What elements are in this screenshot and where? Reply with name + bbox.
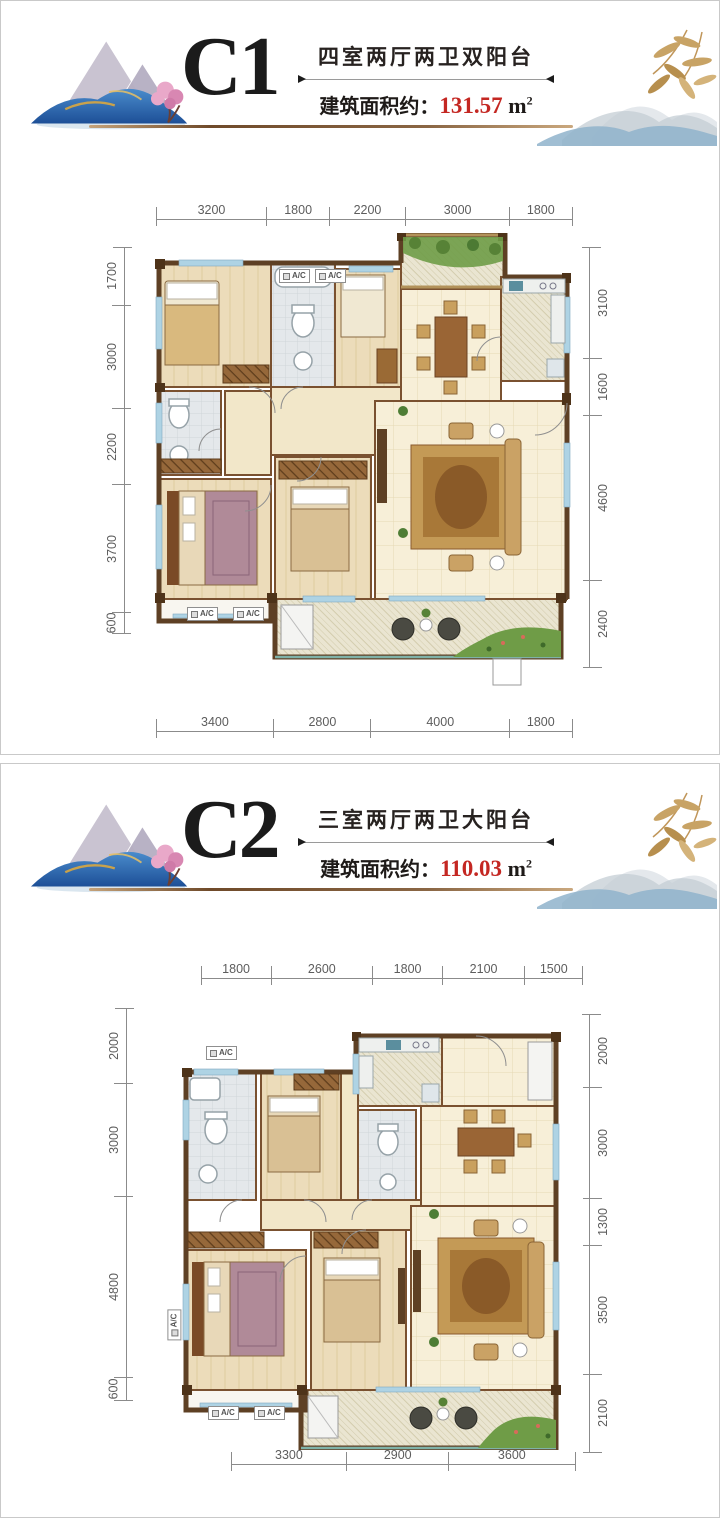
ac-unit-label: A/C	[315, 269, 346, 283]
ac-unit-label: A/C	[233, 607, 264, 621]
header-rule	[89, 125, 573, 128]
dimension-row-top: 18002600180021001500	[201, 952, 583, 978]
area-unit: m2	[508, 93, 532, 118]
ac-unit-label: A/C	[167, 1310, 181, 1341]
dimension-col-left: 200030004800600	[101, 1008, 127, 1400]
divider-arrow-line	[299, 79, 553, 80]
bamboo-mountain-art	[537, 790, 717, 910]
unit-info: 四室两厅两卫双阳台 建筑面积约：131.57 m2	[297, 41, 555, 119]
area-unit: m2	[508, 856, 532, 881]
header-rule	[89, 888, 573, 891]
floorplan-drawing-c2	[176, 1000, 586, 1450]
floorplan-panel-c1: C1 四室两厅两卫双阳台 建筑面积约：131.57 m2 32001800220…	[0, 0, 720, 755]
area-value: 110.03	[440, 856, 502, 881]
bamboo-mountain-art	[537, 27, 717, 147]
dimension-row-bottom: 3400280040001800	[156, 705, 572, 731]
ac-unit-label: A/C	[208, 1406, 239, 1420]
plan-area-c1: 32001800220030001800 3400280040001800 17…	[1, 141, 719, 754]
master-bed	[167, 491, 257, 585]
floorplan-panel-c2: C2 三室两厅两卫大阳台 建筑面积约：110.03 m2 18002600180…	[0, 763, 720, 1518]
unit-descriptor: 三室两厅两卫大阳台	[297, 804, 555, 834]
area-prefix: 建筑面积约：	[319, 96, 439, 118]
ac-unit-label: A/C	[254, 1406, 285, 1420]
ac-unit-label: A/C	[279, 269, 310, 283]
unit-descriptor: 四室两厅两卫双阳台	[297, 41, 555, 71]
plan-area-c2: 18002600180021001500 330029003600 200030…	[1, 904, 719, 1517]
mountain-art	[23, 796, 198, 896]
ac-unit-label: A/C	[206, 1046, 237, 1060]
area-text: 建筑面积约：131.57 m2	[297, 90, 555, 119]
hall-left	[225, 391, 271, 475]
meter-box	[493, 659, 521, 685]
area-text: 建筑面积约：110.03 m2	[297, 853, 555, 882]
unit-name: C1	[181, 25, 278, 109]
floorplan-drawing-c1	[153, 233, 591, 703]
entry-closet	[528, 1042, 552, 1100]
dimension-col-right: 20003000130035002100	[589, 1014, 615, 1452]
hallway	[261, 1200, 421, 1230]
unit-info: 三室两厅两卫大阳台 建筑面积约：110.03 m2	[297, 804, 555, 882]
area-value: 131.57	[439, 93, 502, 118]
wardrobe	[161, 459, 221, 473]
area-prefix: 建筑面积约：	[320, 859, 440, 881]
panel-header-c2: C2 三室两厅两卫大阳台 建筑面积约：110.03 m2	[1, 764, 719, 904]
divider-arrow-line	[299, 842, 553, 843]
dimension-row-top: 32001800220030001800	[156, 193, 572, 219]
dimension-col-right: 3100160046002400	[589, 247, 615, 667]
panel-header-c1: C1 四室两厅两卫双阳台 建筑面积约：131.57 m2	[1, 1, 719, 141]
unit-name: C2	[181, 788, 278, 872]
mountain-art	[23, 33, 198, 133]
dimension-col-left: 1700300022003700600	[99, 247, 125, 633]
ac-unit-label: A/C	[187, 607, 218, 621]
